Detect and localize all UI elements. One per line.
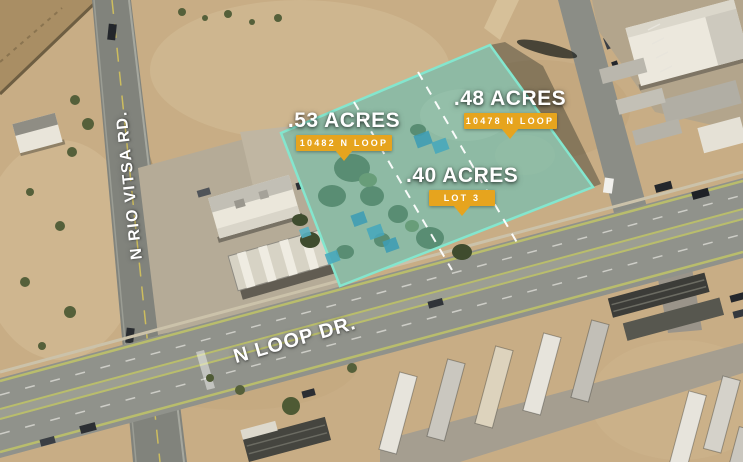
- aerial-photo: [0, 0, 743, 462]
- aerial-parcel-map: .53 ACRES 10482 N LOOP .48 ACRES 10478 N…: [0, 0, 743, 462]
